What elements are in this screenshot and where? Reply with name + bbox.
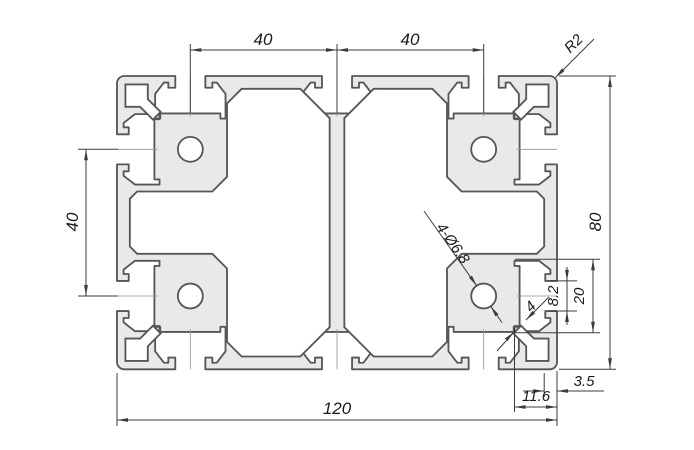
dim-side-pitch-label: 40 [63, 212, 82, 231]
drawing-sheet: 40 40 40 80 120 R2 4-Ø6.8 8.2 20 4 3.5 1… [0, 0, 694, 450]
dim-slot-opening-label: 8.2 [545, 285, 562, 307]
mounting-hole-bottom-left [178, 284, 203, 309]
dim-top-pitch-left-label: 40 [254, 30, 273, 49]
mounting-hole-top-right [471, 137, 496, 162]
dim-wall-thickness-label: 4 [522, 298, 540, 316]
mounting-hole-top-left [178, 137, 203, 162]
dim-outer-wall-label: 3.5 [574, 373, 596, 390]
dim-width-label: 120 [323, 399, 352, 418]
mounting-hole-bottom-right [471, 284, 496, 309]
dim-height-label: 80 [586, 212, 605, 231]
dim-slot-depth-label: 11.6 [522, 388, 551, 405]
profile-section [117, 76, 557, 369]
dim-top-pitch-right-label: 40 [401, 30, 420, 49]
profile-drawing: 40 40 40 80 120 R2 4-Ø6.8 8.2 20 4 3.5 1… [0, 0, 694, 450]
dim-corner-radius-label: R2 [561, 31, 587, 57]
dim-slot-width-label: 20 [571, 287, 588, 305]
